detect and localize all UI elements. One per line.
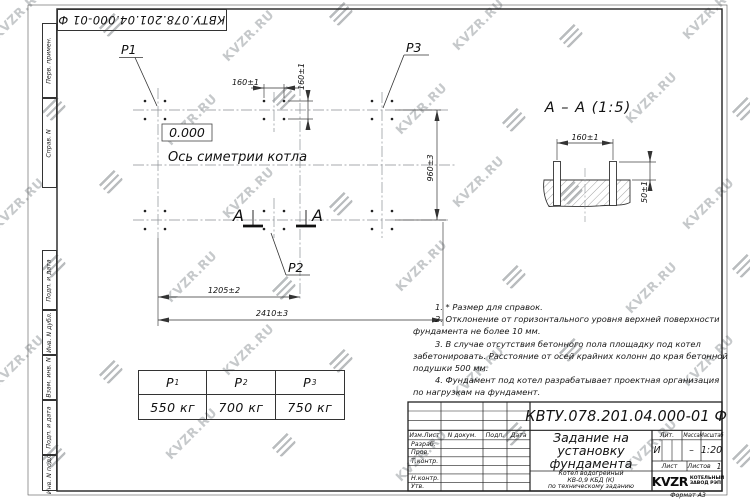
kvzr-logo-text: KVZR bbox=[652, 474, 688, 489]
tb-lit-value: И bbox=[652, 440, 662, 460]
tb-sheets-label: Листов bbox=[688, 463, 711, 470]
title-line: фундамента bbox=[550, 457, 633, 470]
tb-mass-value: – bbox=[682, 440, 701, 460]
p-subscript: 2 bbox=[243, 378, 248, 387]
margin-label: Инв. N подл. bbox=[46, 453, 53, 494]
tb-row-nkontr: Н.контр. bbox=[409, 475, 443, 482]
tb-row-utv: Утв. bbox=[409, 483, 443, 490]
dim-width: 960±3 bbox=[426, 154, 435, 181]
tb-scale-label: Масштаб bbox=[703, 431, 720, 440]
section-cut-marks: А А bbox=[232, 206, 323, 226]
dim-length: 2410±3 bbox=[256, 309, 288, 318]
dim-section-bolt-spacing: 160±1 bbox=[571, 133, 598, 142]
note-line: забетонировать. Расстояние от осей крайн… bbox=[413, 350, 747, 362]
margin-box-podp-data-2: Подп. и дата bbox=[42, 400, 57, 455]
load-label-p3: P3 bbox=[406, 40, 422, 55]
tb-row-tkontr: Т.контр. bbox=[409, 458, 443, 465]
company-name: КОТЕЛЬНЫЙ ЗАВОД РЭП bbox=[690, 476, 724, 486]
tb-sheets-value: 1 bbox=[717, 462, 722, 471]
margin-box-vzam-inv: Взам. инв. N bbox=[42, 355, 57, 400]
margin-label: Инв. N дубл. bbox=[46, 312, 53, 353]
subtitle-line: по техническому заданию bbox=[548, 484, 634, 491]
tb-header-n-dokum: N докум. bbox=[441, 431, 483, 440]
anchor-bolt-right bbox=[610, 162, 617, 206]
tb-mass-label: Масса bbox=[684, 431, 700, 440]
tb-row-razrab: Разраб. bbox=[409, 441, 443, 448]
dimension-lines bbox=[158, 88, 443, 320]
margin-label: Подп. и дата bbox=[46, 406, 53, 448]
title-block-title: Задание на установку фундамента bbox=[530, 431, 652, 470]
p-symbol: Р bbox=[166, 375, 174, 390]
tb-header-podp: Подп. bbox=[483, 431, 507, 440]
tb-sheet-label: Лист bbox=[652, 461, 687, 471]
notes-block: 1. * Размер для справок. 2. Отклонение о… bbox=[413, 301, 747, 399]
margin-label: Подп. и дата bbox=[46, 259, 53, 301]
tb-lit-label: Лит. bbox=[652, 431, 682, 440]
elevation-value: 0.000 bbox=[169, 125, 205, 140]
p-symbol: Р bbox=[234, 375, 242, 390]
load-value-p1: 550 кг bbox=[139, 395, 207, 419]
load-value-p2: 700 кг bbox=[207, 395, 275, 419]
note-line: по нагрузкам на фундамент. bbox=[413, 386, 747, 398]
company-name-line: ЗАВОД РЭП bbox=[690, 481, 724, 486]
note-line: 4. Фундамент под котел разрабатывает про… bbox=[413, 374, 747, 386]
load-label-p1: P1 bbox=[121, 42, 137, 57]
load-table: Р1 Р2 Р3 550 кг 700 кг 750 кг bbox=[138, 370, 345, 420]
margin-box-inv-podl: Инв. N подл. bbox=[42, 455, 57, 491]
dim-section-protrusion: 50±1 bbox=[640, 181, 649, 203]
tb-header-izm-list: Изм.Лист bbox=[408, 431, 441, 440]
tb-scale-value: 1:20 bbox=[701, 440, 722, 460]
p-subscript: 3 bbox=[312, 378, 317, 387]
load-value-p3: 750 кг bbox=[276, 395, 344, 419]
dim-bolt-spacing-v: 160±1 bbox=[297, 63, 306, 90]
margin-label: Перв. примен. bbox=[46, 37, 53, 83]
section-letter-left: А bbox=[232, 206, 244, 225]
plan-view: 160±1 160±1 960±3 1205±2 2410±3 P1 P2 P3 bbox=[119, 40, 455, 326]
margin-label: Справ. N bbox=[46, 129, 53, 157]
axis-of-symmetry-label: Ось симетрии котла bbox=[168, 150, 307, 165]
section-title: А – А (1:5) bbox=[544, 100, 632, 116]
anchor-bolt-left bbox=[554, 162, 561, 206]
note-line: 1. * Размер для справок. bbox=[413, 301, 747, 313]
note-line: 2. Отклонение от горизонтального уровня … bbox=[413, 313, 747, 325]
tb-row-prov: Пров. bbox=[409, 449, 443, 456]
tb-header-data: Дата bbox=[507, 431, 530, 440]
margin-box-inv-dubl: Инв. N дубл. bbox=[42, 310, 57, 355]
p-subscript: 1 bbox=[175, 378, 180, 387]
doc-number-text: КВТУ.078.201.04.000-01 Ф bbox=[525, 407, 727, 425]
dim-half-length: 1205±2 bbox=[208, 286, 240, 295]
company-logo: KVZR КОТЕЛЬНЫЙ ЗАВОД РЭП bbox=[652, 471, 722, 491]
filing-stamp: КВТУ.078.201.04.000-01 Ф bbox=[57, 9, 227, 31]
section-view: А – А (1:5) 160±1 50±1 bbox=[544, 100, 656, 222]
extension-lines bbox=[158, 84, 446, 326]
margin-label: Взам. инв. N bbox=[46, 357, 53, 397]
load-table-header-p1: Р1 bbox=[139, 371, 207, 395]
section-extension-lines bbox=[557, 139, 656, 180]
note-line: подушки 500 мм. bbox=[413, 362, 747, 374]
title-block-doc-number: КВТУ.078.201.04.000-01 Ф bbox=[530, 402, 722, 430]
dim-bolt-spacing-h: 160±1 bbox=[232, 78, 259, 87]
section-letter-right: А bbox=[311, 206, 323, 225]
margin-box-podp-data-1: Подп. и дата bbox=[42, 250, 57, 310]
p-symbol: Р bbox=[303, 375, 311, 390]
title-block-subtitle: Котел водогрейный КВ-0,9 КБД (К) по техн… bbox=[530, 471, 652, 491]
load-label-p2: P2 bbox=[288, 260, 304, 275]
margin-box-perv-primen: Перв. примен. bbox=[42, 23, 57, 98]
tb-sheets-cell: Листов 1 bbox=[687, 461, 722, 471]
margin-box-sprav-n: Справ. N bbox=[42, 98, 57, 188]
format-label: Формат А3 bbox=[648, 492, 728, 500]
load-table-header-p2: Р2 bbox=[207, 371, 275, 395]
drawing-sheet: KVZR.RUKVZR.RUKVZR.RUKVZR.RUKVZR.RUKVZR.… bbox=[0, 0, 750, 500]
note-line: фундамента не более 10 мм. bbox=[413, 325, 747, 337]
filing-stamp-doc-number: КВТУ.078.201.04.000-01 Ф bbox=[58, 13, 225, 27]
load-table-header-p3: Р3 bbox=[276, 371, 344, 395]
note-line: 3. В случае отсутствия бетонного пола пл… bbox=[413, 338, 747, 350]
